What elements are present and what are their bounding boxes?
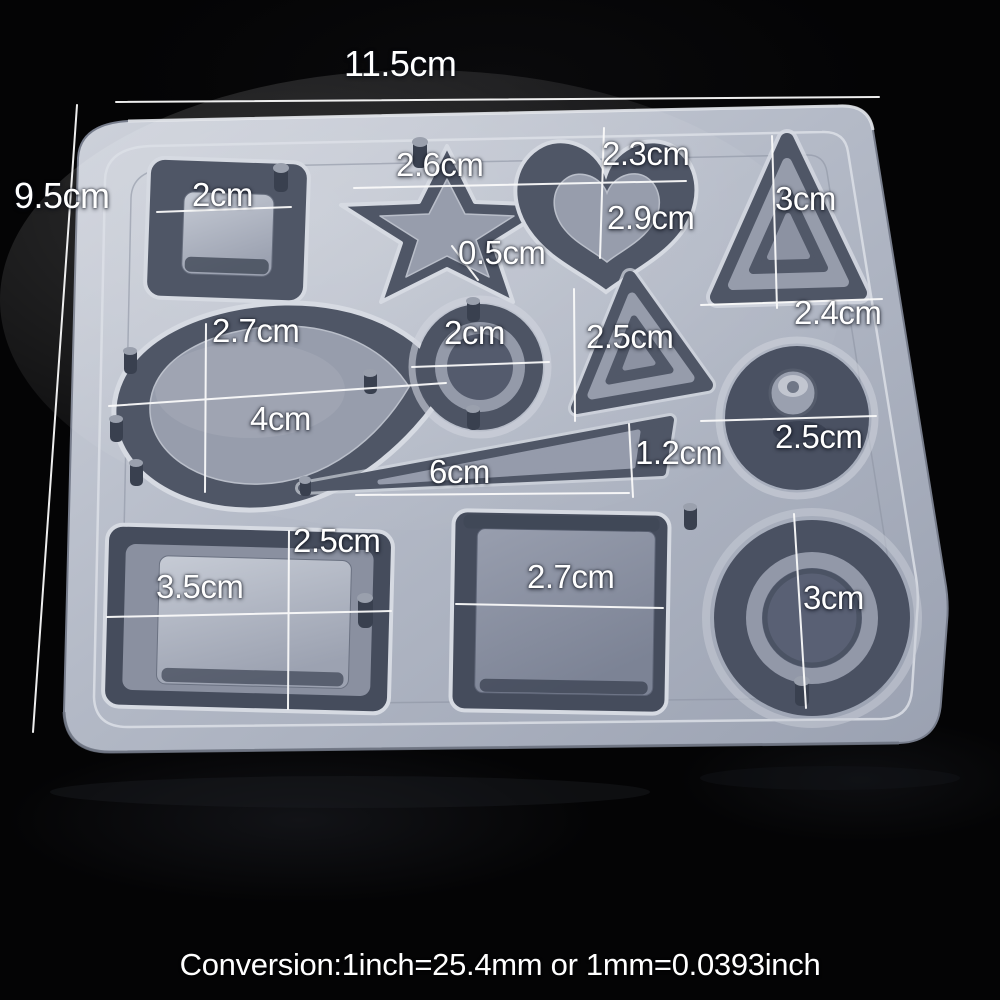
dim-label-teardrop-length: 4cm	[250, 402, 311, 435]
mold-photo-illustration	[0, 0, 1000, 1000]
dim-label-rect-height: 2.5cm	[293, 524, 380, 557]
background-reflections	[50, 766, 960, 808]
dim-label-square-bottom: 2.7cm	[527, 560, 614, 593]
dim-label-spike-length: 6cm	[429, 455, 490, 488]
circle-bottom-cavity	[706, 512, 918, 724]
dim-label-circle-right: 2.5cm	[775, 420, 862, 453]
dim-label-triangle-base: 2.4cm	[794, 296, 881, 329]
product-photo: 11.5cm 9.5cm 2cm 2.6cm 0.5cm 2.3cm 2.9cm…	[0, 0, 1000, 1000]
dim-label-spike-height: 1.2cm	[635, 436, 722, 469]
dim-label-star-width: 2.6cm	[396, 148, 483, 181]
dim-label-star-edge: 0.5cm	[458, 236, 545, 269]
dim-label-rect-width: 3.5cm	[156, 570, 243, 603]
dim-label-triangle-middle: 2.5cm	[586, 320, 673, 353]
dim-label-mold-width: 11.5cm	[344, 46, 456, 82]
dim-label-triangle-height: 3cm	[775, 182, 836, 215]
dim-label-teardrop-width: 2.7cm	[212, 314, 299, 347]
dim-label-circle-middle: 2cm	[444, 316, 505, 349]
dim-label-heart-width: 2.3cm	[602, 137, 689, 170]
dim-label-square-top: 2cm	[192, 178, 253, 211]
dim-label-circle-bottom: 3cm	[803, 581, 864, 614]
conversion-caption: Conversion:1inch=25.4mm or 1mm=0.0393inc…	[0, 947, 1000, 983]
square-bottom-cavity	[450, 510, 669, 714]
dim-label-heart-height: 2.9cm	[607, 201, 694, 234]
dim-label-mold-height: 9.5cm	[14, 178, 110, 214]
